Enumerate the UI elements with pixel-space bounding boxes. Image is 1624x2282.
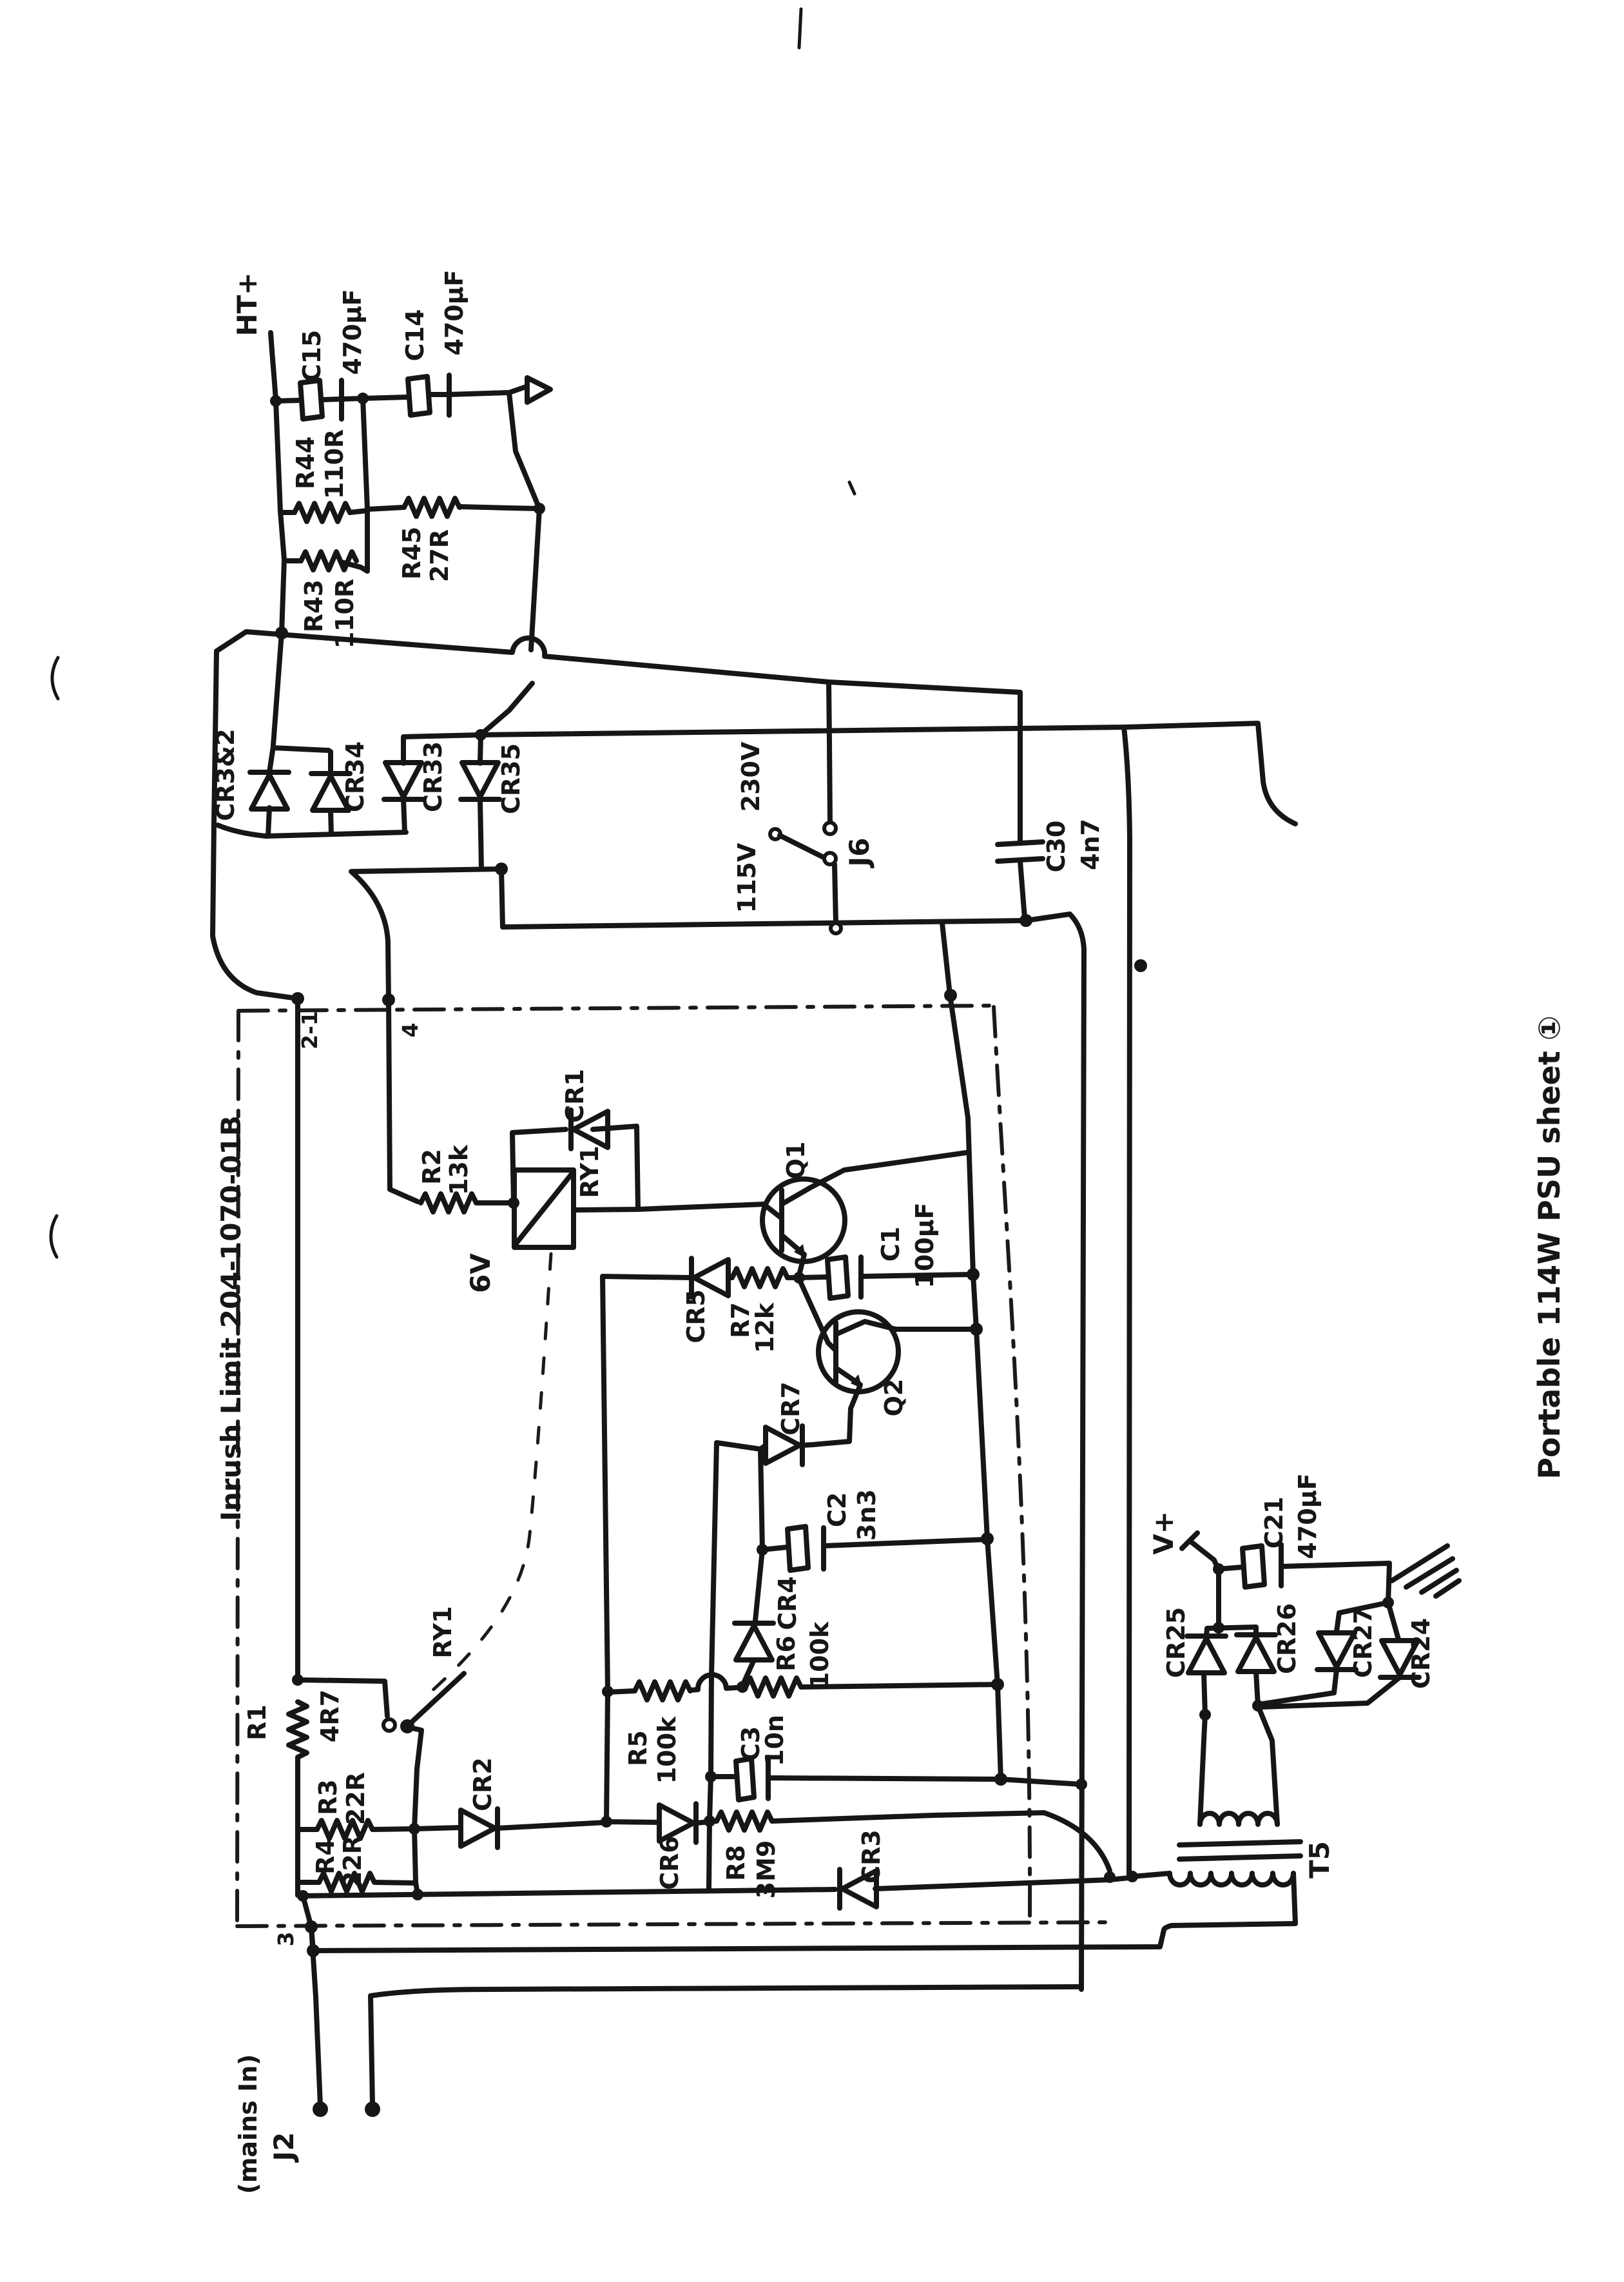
capacitor-c21: C21 470µF	[1242, 1473, 1322, 1587]
resistor-r1: R1 4R7	[243, 1690, 344, 1757]
connector-ht-plus: HT+	[231, 273, 263, 336]
diode-symbol	[735, 1623, 773, 1660]
module-pin-4-label: 4	[398, 1023, 423, 1038]
j2-terminal	[365, 2102, 380, 2117]
c15-value-label: 470µF	[338, 289, 367, 375]
voltage-selector-j6: 230V 115V J6	[733, 741, 875, 933]
c3-value-label: 10n	[760, 1715, 789, 1766]
junction-dot	[967, 1268, 980, 1281]
diode-symbol	[250, 772, 289, 809]
scan-mark	[51, 1216, 57, 1257]
cr1-ref-label: CR1	[561, 1069, 589, 1123]
diode-symbol	[461, 1809, 498, 1848]
wire-rail-g	[371, 1987, 1081, 2104]
cr25-ref-label: CR25	[1162, 1607, 1190, 1678]
contact-pivot	[400, 1719, 414, 1733]
r7-value-label: 12k	[751, 1302, 779, 1353]
diode-cr24: CR24	[1380, 1618, 1435, 1689]
diode-cr7: CR7	[766, 1381, 805, 1465]
j6-ref-label: J6	[844, 838, 875, 869]
c14-value-label: 470µF	[440, 269, 469, 355]
relay-coil-ry1: RY1 6V	[465, 1146, 604, 1292]
ht-output-arrow-icon	[527, 378, 550, 402]
capacitor-symbol	[827, 1257, 861, 1298]
junction-dot	[981, 1532, 994, 1545]
resistor-r8: R8 3M9	[717, 1812, 780, 1898]
junction-dot	[307, 1944, 320, 1957]
r44-value-label: 110R	[320, 429, 349, 500]
capacitor-symbol	[788, 1526, 824, 1570]
junction-dot	[409, 1823, 420, 1835]
resistor-r44: R44 110R	[291, 429, 350, 522]
cr26-ref-label: CR26	[1273, 1603, 1301, 1674]
cr4-ref-label: CR4	[773, 1576, 802, 1630]
cr2-ref-label: CR2	[469, 1757, 497, 1811]
t5-ref-label: T5	[1304, 1841, 1335, 1878]
r8-value-label: 3M9	[752, 1840, 780, 1899]
junction-dot	[944, 989, 957, 1002]
j6-115v-label: 115V	[733, 843, 761, 913]
resistor-r2: R2 13k	[418, 1144, 476, 1212]
diode-cr27: CR27	[1317, 1607, 1377, 1678]
junction-dot	[1382, 1597, 1394, 1608]
junction-dot	[601, 1816, 612, 1828]
r2-value-label: 13k	[445, 1144, 473, 1195]
diode-cr6: CR6	[655, 1804, 696, 1890]
wire-rail-e	[942, 923, 1001, 1779]
cr27-ref-label: CR27	[1349, 1607, 1377, 1678]
cr7-ref-label: CR7	[777, 1381, 805, 1436]
capacitor-symbol	[1242, 1545, 1281, 1587]
j6-contact-115	[824, 853, 836, 864]
cr33-ref-label: CR33	[419, 741, 447, 812]
diode-cr3: CR3	[840, 1829, 885, 1908]
wire-net-bottom	[311, 1927, 1164, 2104]
junction-dot	[495, 863, 508, 875]
r4-ref-label: R4	[311, 1838, 340, 1875]
j6-contact-230	[824, 823, 836, 834]
scan-mark	[849, 482, 855, 494]
junction-dot	[292, 1674, 304, 1686]
v-plus-label: V+	[1148, 1511, 1179, 1555]
resistor-r5: R5 100k	[624, 1682, 690, 1784]
junction-dot	[737, 1681, 748, 1693]
j2-mains-note-label: (mains In)	[234, 2054, 262, 2194]
wire-rail-f	[311, 1927, 1164, 1951]
junction-dot	[1020, 914, 1032, 927]
j6-wiper-blade	[780, 835, 824, 857]
wire-t5-leads	[1132, 1672, 1295, 1930]
resistor-r7: R7 12k	[726, 1269, 788, 1353]
c30-value-label: 4n7	[1076, 819, 1105, 870]
contact-fixed-terminal	[383, 1719, 395, 1731]
wire-bus-h	[303, 1878, 1129, 1896]
diode-symbol	[384, 763, 423, 799]
diode-symbol	[1187, 1636, 1226, 1673]
diode-cr26: CR26	[1237, 1603, 1301, 1674]
junction-dot	[704, 1815, 715, 1827]
cr3-ref-label: CR3	[857, 1829, 885, 1884]
r44-ref-label: R44	[291, 436, 320, 489]
relay-coil-diagonal	[516, 1173, 572, 1244]
r4-value-label: 22R	[338, 1835, 367, 1888]
junction-dot	[970, 1323, 983, 1336]
ground-symbol	[1392, 1546, 1459, 1596]
r3-ref-label: R3	[314, 1779, 342, 1815]
capacitor-c2: C2 3n3	[788, 1489, 881, 1570]
sheet-title: Portable 114W PSU sheet ①	[1532, 1015, 1567, 1479]
cr24-ref-label: CR24	[1407, 1618, 1435, 1689]
cr6-ref-label: CR6	[655, 1836, 684, 1890]
capacitor-c3: C3 10n	[736, 1715, 789, 1800]
resistor-r4: R4 22R	[311, 1835, 374, 1891]
scanned-schematic-page: HT+ C15 470µF C14 470µF R44 110R R43 110…	[0, 0, 1624, 2282]
scan-artifacts	[51, 9, 855, 1257]
c2-ref-label: C2	[823, 1492, 851, 1527]
module-pin-21-label: 2-1	[297, 1011, 322, 1049]
resistor-r3: R3 22R	[314, 1772, 372, 1838]
r5-ref-label: R5	[624, 1730, 652, 1766]
junction-dot	[991, 1678, 1004, 1691]
schematic-canvas: HT+ C15 470µF C14 470µF R44 110R R43 110…	[0, 0, 1624, 2282]
diode-cr5: CR5	[682, 1258, 728, 1343]
t5-core	[1179, 1842, 1300, 1859]
r8-ref-label: R8	[722, 1845, 750, 1881]
q2-ref-label: Q2	[880, 1379, 908, 1417]
ry1-coil-voltage-label: 6V	[465, 1253, 496, 1293]
c15-ref-label: C15	[298, 330, 326, 382]
junction-dot	[1213, 1563, 1224, 1575]
diode-cr1: CR1	[561, 1069, 608, 1149]
j6-230v-label: 230V	[737, 741, 765, 812]
cr34-ref-label: CR34	[341, 741, 369, 812]
wire-rail	[503, 682, 1084, 1989]
scan-mark	[52, 658, 58, 699]
c1-value-label: 100µF	[911, 1202, 939, 1288]
r43-value-label: 110R	[331, 579, 359, 649]
r45-ref-label: R45	[398, 527, 426, 580]
junction-dot	[994, 1773, 1007, 1786]
r6-ref-label: R6	[772, 1635, 800, 1672]
junction-dot	[1199, 1709, 1211, 1721]
c1-ref-label: C1	[876, 1227, 905, 1262]
r43-ref-label: R43	[300, 580, 328, 632]
junction-dot	[1252, 1700, 1264, 1711]
resistor-r45: R45 27R	[398, 498, 459, 582]
junction-dot	[602, 1686, 614, 1697]
junction-dot	[1076, 1779, 1087, 1790]
junction-dot	[270, 395, 282, 407]
capacitor-symbol	[998, 842, 1043, 861]
junction-dot	[1104, 1871, 1116, 1883]
c21-value-label: 470µF	[1293, 1473, 1322, 1559]
junction-dot	[291, 992, 304, 1005]
cr5-ref-label: CR5	[682, 1289, 710, 1343]
junction-dot	[508, 1197, 519, 1209]
capacitor-c30: C30 4n7	[998, 819, 1105, 872]
diode-symbol	[1237, 1635, 1275, 1672]
ground-hatch	[1392, 1546, 1459, 1596]
ry1-coil-ref-label: RY1	[575, 1146, 604, 1198]
r5-value-label: 100k	[653, 1716, 681, 1784]
c2-value-label: 3n3	[853, 1489, 881, 1541]
j6-common-terminal	[831, 923, 841, 933]
c14-ref-label: C14	[401, 309, 429, 362]
module-pin-3-label: 3	[273, 1932, 298, 1947]
wire-q2-area	[709, 1321, 976, 1889]
junction-dot	[275, 627, 288, 639]
junction-dot	[1126, 1871, 1138, 1882]
c21-ref-label: C21	[1260, 1497, 1288, 1549]
cr35-ref-label: CR35	[497, 743, 525, 814]
t5-primary-winding	[1200, 1813, 1277, 1824]
r45-value-label: 27R	[425, 529, 454, 582]
junction-dot	[793, 1272, 805, 1283]
scan-mark	[799, 9, 801, 48]
j2-terminal	[313, 2102, 328, 2117]
r2-ref-label: R2	[418, 1149, 446, 1185]
cr3x2-ref-label: CR3&2	[211, 728, 240, 821]
transformer-t5: T5	[1170, 1813, 1335, 1885]
junction-dot	[1213, 1622, 1224, 1633]
junction-dot	[705, 1771, 717, 1782]
diode-cr2: CR2	[461, 1757, 498, 1848]
junction-dot	[297, 1890, 309, 1902]
ht-plus-label: HT+	[231, 273, 263, 336]
wire-net-output	[1132, 1533, 1400, 1930]
j2-ref-label: J2	[268, 2132, 300, 2163]
t5-secondary-winding	[1170, 1873, 1293, 1885]
q1-ref-label: Q1	[782, 1142, 810, 1180]
junction-dot	[412, 1889, 423, 1900]
wire-net-module	[298, 923, 1129, 2105]
r3-value-label: 22R	[342, 1772, 370, 1825]
diode-symbol	[461, 763, 499, 799]
r1-value-label: 4R7	[316, 1690, 344, 1742]
junction-dot	[1134, 959, 1147, 972]
r1-ref-label: R1	[243, 1704, 271, 1741]
junction-dot	[357, 393, 369, 404]
junction-dot	[382, 993, 395, 1006]
transistor-q1: Q1	[762, 1142, 845, 1262]
ry1-contact-ref-label: RY1	[429, 1606, 457, 1658]
junction-dot	[757, 1544, 768, 1555]
inrush-module-label: Inrush Limit 204-1070-01B	[215, 1115, 247, 1521]
junction-dot	[534, 503, 545, 514]
c30-ref-label: C30	[1042, 821, 1070, 873]
r6-value-label: 100k	[806, 1621, 834, 1689]
wire-pin-rails	[298, 999, 418, 2105]
connector-j2: (mains In) J2	[234, 2054, 380, 2194]
junction-dot	[305, 1920, 318, 1933]
junction-dot	[475, 729, 487, 741]
